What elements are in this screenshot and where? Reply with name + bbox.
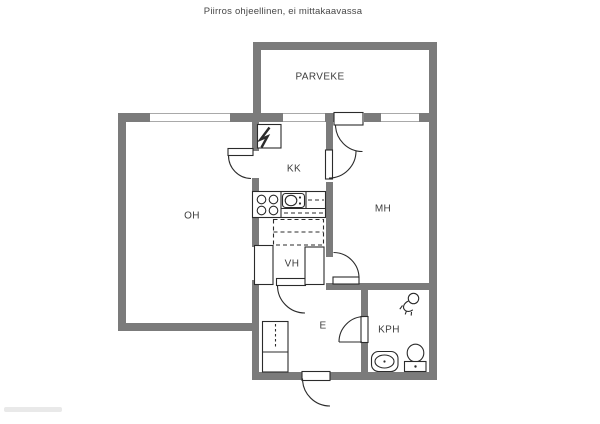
closet-wardrobe-left xyxy=(255,246,274,285)
watermark xyxy=(4,407,62,412)
living-room-kitchen-door xyxy=(228,149,253,179)
toilet-icon xyxy=(405,344,427,371)
shower-icon xyxy=(400,293,419,315)
kitchen-counter xyxy=(253,192,326,218)
bedroom-hall-door xyxy=(333,253,359,285)
hall-wardrobe xyxy=(263,322,289,373)
room-label-parveke: PARVEKE xyxy=(295,72,344,83)
kitchen-bedroom-door xyxy=(326,150,357,179)
closet-hall-door xyxy=(277,279,306,314)
plan-symbols xyxy=(0,0,600,424)
entrance-door xyxy=(302,372,330,407)
closet-wardrobe-right xyxy=(305,247,324,285)
room-label-e: E xyxy=(319,321,326,332)
room-label-oh: OH xyxy=(184,211,200,222)
room-label-kk: KK xyxy=(287,164,301,175)
bathroom-door xyxy=(339,317,368,343)
washbasin-icon xyxy=(372,352,399,372)
room-label-mh: MH xyxy=(375,204,391,215)
balcony-door xyxy=(334,113,363,152)
room-label-kph: KPH xyxy=(378,325,400,336)
room-label-vh: VH xyxy=(285,259,300,270)
electrical-panel-icon xyxy=(258,125,282,149)
appliance-reservation xyxy=(274,220,324,246)
floor-plan: Piirros ohjeellinen, ei mittakaavassa xyxy=(0,0,600,424)
